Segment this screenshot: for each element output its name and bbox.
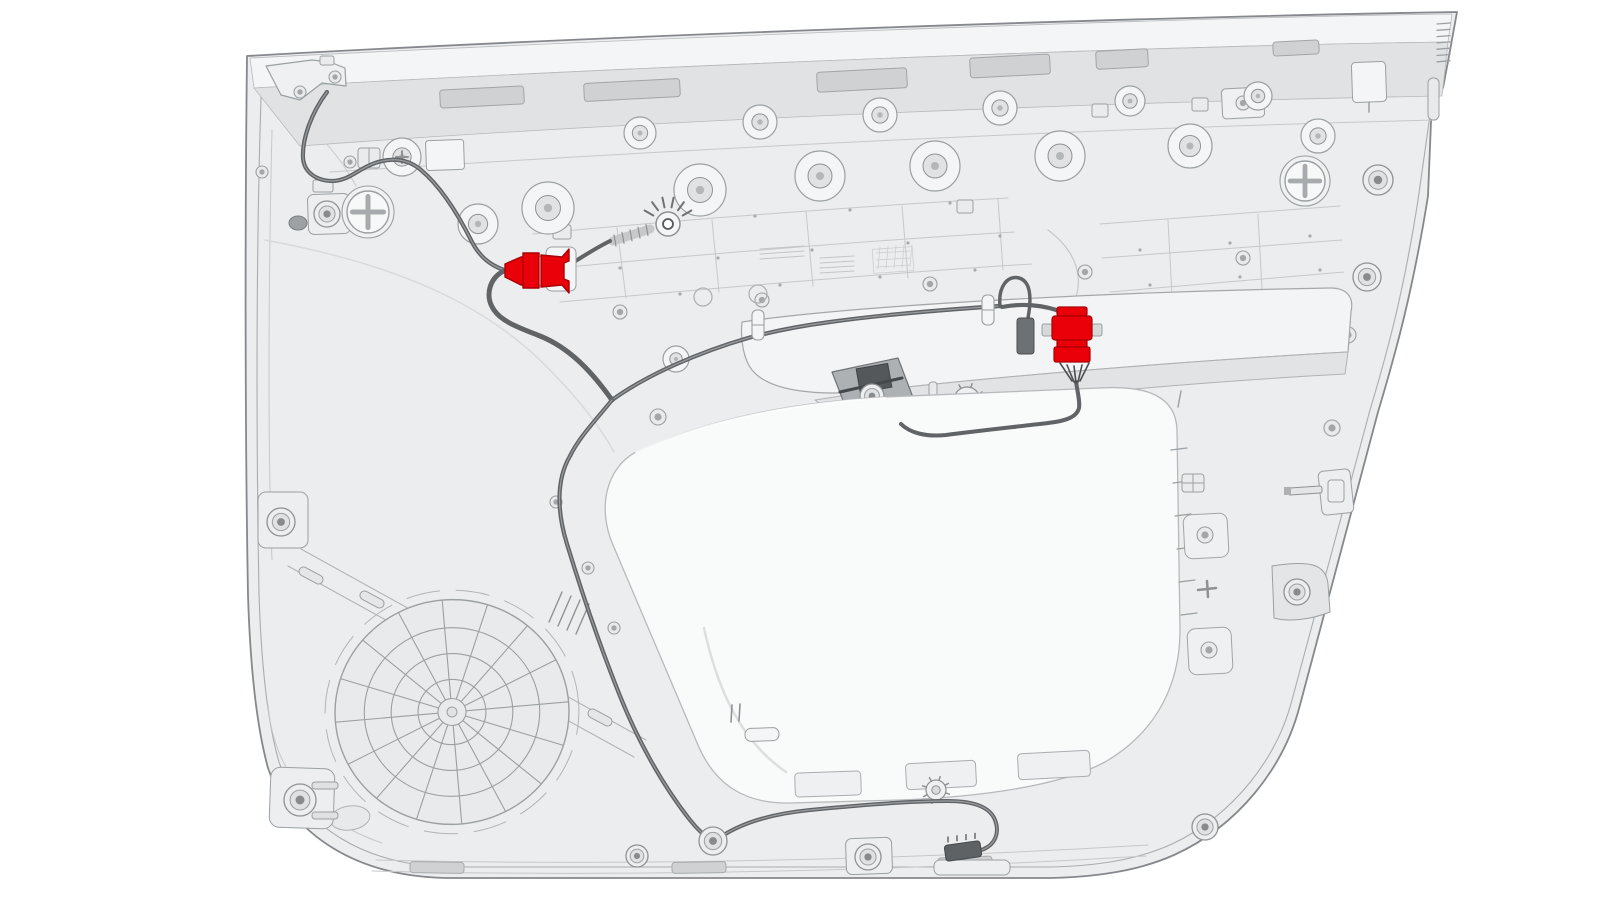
bottom-connector-pedestal — [934, 860, 1010, 875]
dark-connector — [1017, 318, 1034, 354]
retainer-slot — [817, 68, 908, 93]
red-connector-stack-base — [1054, 347, 1090, 362]
red-connector-stack-band — [1057, 340, 1087, 347]
pad — [795, 771, 862, 797]
bottom-slot — [410, 862, 464, 874]
retainer-slot — [1096, 49, 1149, 70]
door-panel-illustration — [0, 0, 1600, 900]
red-connector-stack-body — [1052, 316, 1092, 340]
retainer-slot — [970, 54, 1051, 78]
technical-drawing — [0, 0, 1600, 900]
retainer-slot — [440, 86, 525, 108]
retainer-slot — [1273, 40, 1320, 56]
pin-bracket — [1318, 468, 1354, 515]
red-connector-stack-cap — [1057, 307, 1087, 316]
pad — [1017, 750, 1090, 780]
bottom-slot — [672, 862, 726, 874]
red-connector-inline-mid — [523, 253, 539, 288]
